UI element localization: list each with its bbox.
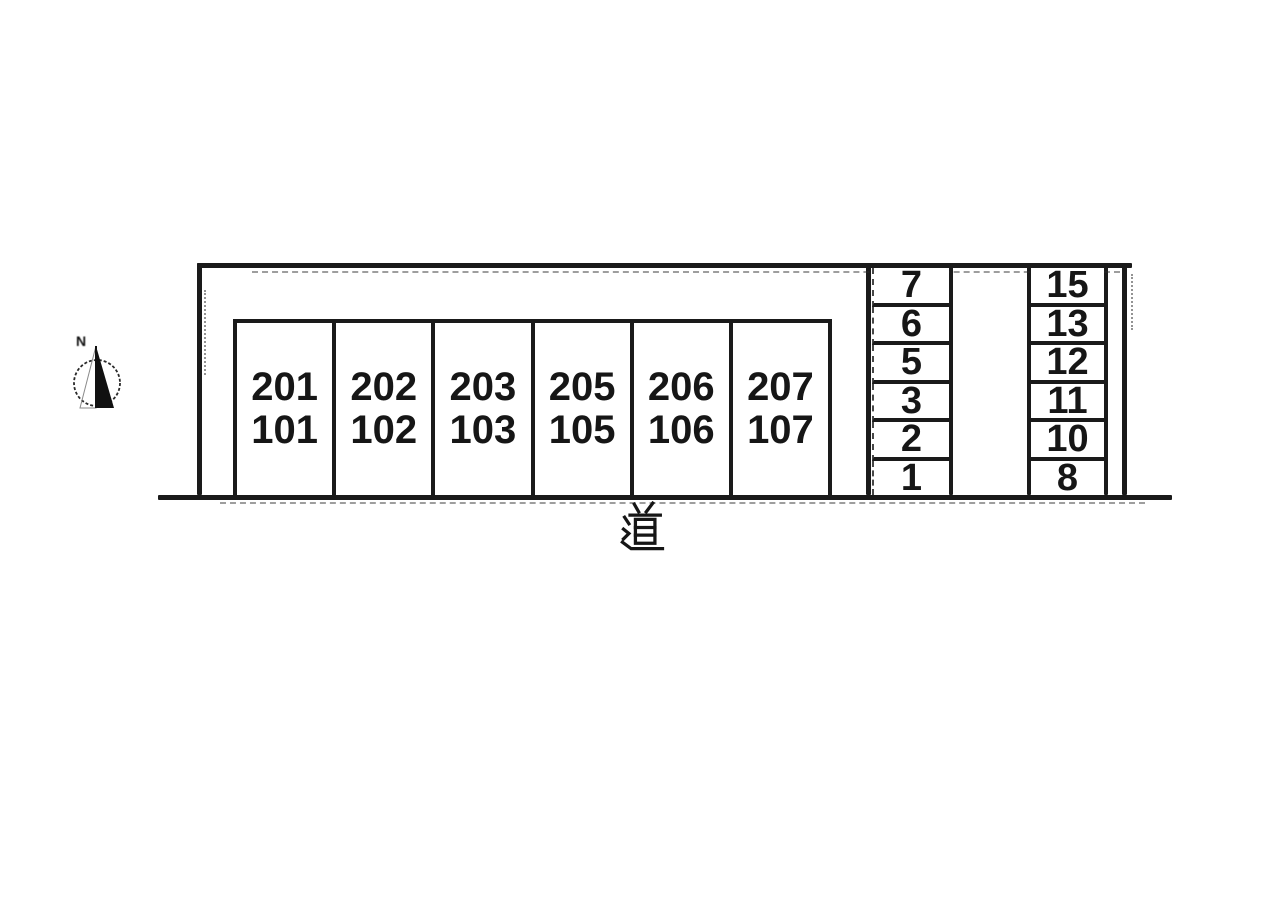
- parking-stall-2: 2: [872, 422, 949, 461]
- right-wall-dotted-line: [1131, 274, 1133, 330]
- room-number-lower: 107: [747, 409, 814, 452]
- parking-stall-10: 10: [1031, 422, 1104, 461]
- road-label: 道: [620, 501, 670, 553]
- stall-number: 5: [901, 347, 922, 377]
- room-number-lower: 105: [549, 409, 616, 452]
- parking-stall-15: 15: [1031, 268, 1104, 307]
- room-box-207-107: 207 107: [729, 319, 832, 495]
- site-plan: 201 101 202 102 203 103 205 105 206 106 …: [0, 0, 1273, 899]
- left-wall-dotted-line: [204, 290, 206, 375]
- boundary-right-line: [1122, 263, 1127, 495]
- stall-number: 2: [901, 424, 922, 454]
- parking-stall-7: 7: [872, 268, 949, 307]
- parking-stall-8: 8: [1031, 461, 1104, 496]
- parking-stall-6: 6: [872, 307, 949, 346]
- parking-stall-13: 13: [1031, 307, 1104, 346]
- inner-top-dashed-line: [252, 271, 1120, 273]
- room-row: 201 101 202 102 203 103 205 105 206 106 …: [233, 319, 832, 495]
- road-line: [158, 495, 1172, 500]
- stall-number: 10: [1046, 424, 1088, 454]
- stall-number: 3: [901, 386, 922, 416]
- room-box-206-106: 206 106: [630, 319, 733, 495]
- parking-stall-1: 1: [872, 461, 949, 496]
- room-box-202-102: 202 102: [332, 319, 435, 495]
- room-number-lower: 103: [450, 409, 517, 452]
- room-number-upper: 201: [251, 366, 318, 409]
- room-number-upper: 202: [350, 366, 417, 409]
- parking-column-right: 15 13 12 11 10 8: [1031, 268, 1104, 495]
- stall-number: 7: [901, 270, 922, 300]
- room-number-lower: 102: [350, 409, 417, 452]
- stall-number: 12: [1046, 347, 1088, 377]
- room-number-upper: 206: [648, 366, 715, 409]
- parking-left-column-right-line: [949, 266, 953, 495]
- boundary-left-line: [197, 263, 202, 495]
- stall-number: 6: [901, 309, 922, 339]
- road-dashed-line: [220, 502, 1145, 504]
- stall-number: 13: [1046, 309, 1088, 339]
- parking-stall-11: 11: [1031, 384, 1104, 423]
- room-box-205-105: 205 105: [531, 319, 634, 495]
- room-number-upper: 203: [450, 366, 517, 409]
- room-box-201-101: 201 101: [233, 319, 336, 495]
- parking-column-left: 7 6 5 3 2 1: [872, 268, 949, 495]
- stall-number: 1: [901, 463, 922, 493]
- boundary-top-line: [197, 263, 1132, 268]
- stall-number: 8: [1057, 463, 1078, 493]
- parking-stall-5: 5: [872, 345, 949, 384]
- room-box-203-103: 203 103: [431, 319, 534, 495]
- room-number-lower: 101: [251, 409, 318, 452]
- compass-icon: [57, 329, 139, 419]
- stall-number: 15: [1046, 270, 1088, 300]
- parking-stall-12: 12: [1031, 345, 1104, 384]
- north-label: N: [76, 333, 86, 349]
- room-number-upper: 205: [549, 366, 616, 409]
- parking-stall-3: 3: [872, 384, 949, 423]
- road-label-text: 道: [666, 501, 667, 502]
- parking-right-column-right-line: [1104, 266, 1108, 495]
- room-number-upper: 207: [747, 366, 814, 409]
- stall-number: 11: [1047, 386, 1087, 416]
- room-number-lower: 106: [648, 409, 715, 452]
- building-right-wall-line: [866, 263, 871, 495]
